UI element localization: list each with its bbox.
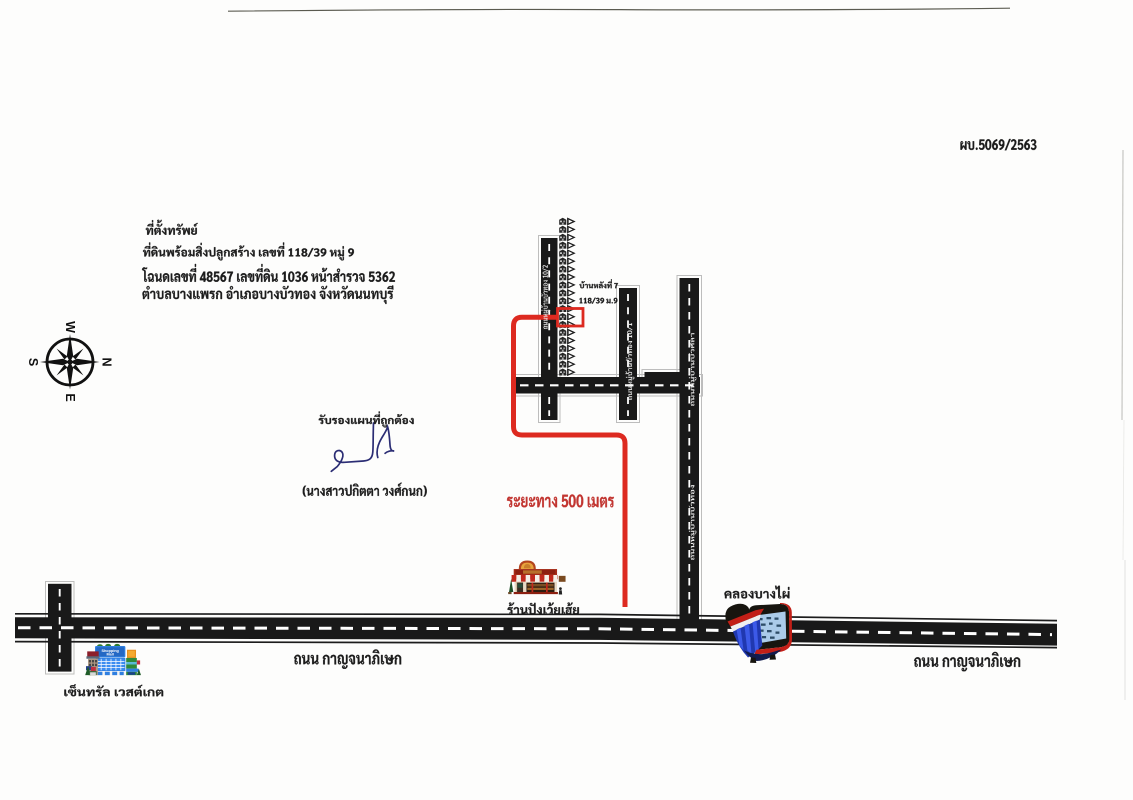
svg-text:S: S xyxy=(26,358,40,366)
svg-text:N: N xyxy=(99,357,113,366)
svg-text:Mall: Mall xyxy=(107,653,114,657)
svg-text:W: W xyxy=(63,321,77,333)
svg-text:E: E xyxy=(63,393,77,401)
